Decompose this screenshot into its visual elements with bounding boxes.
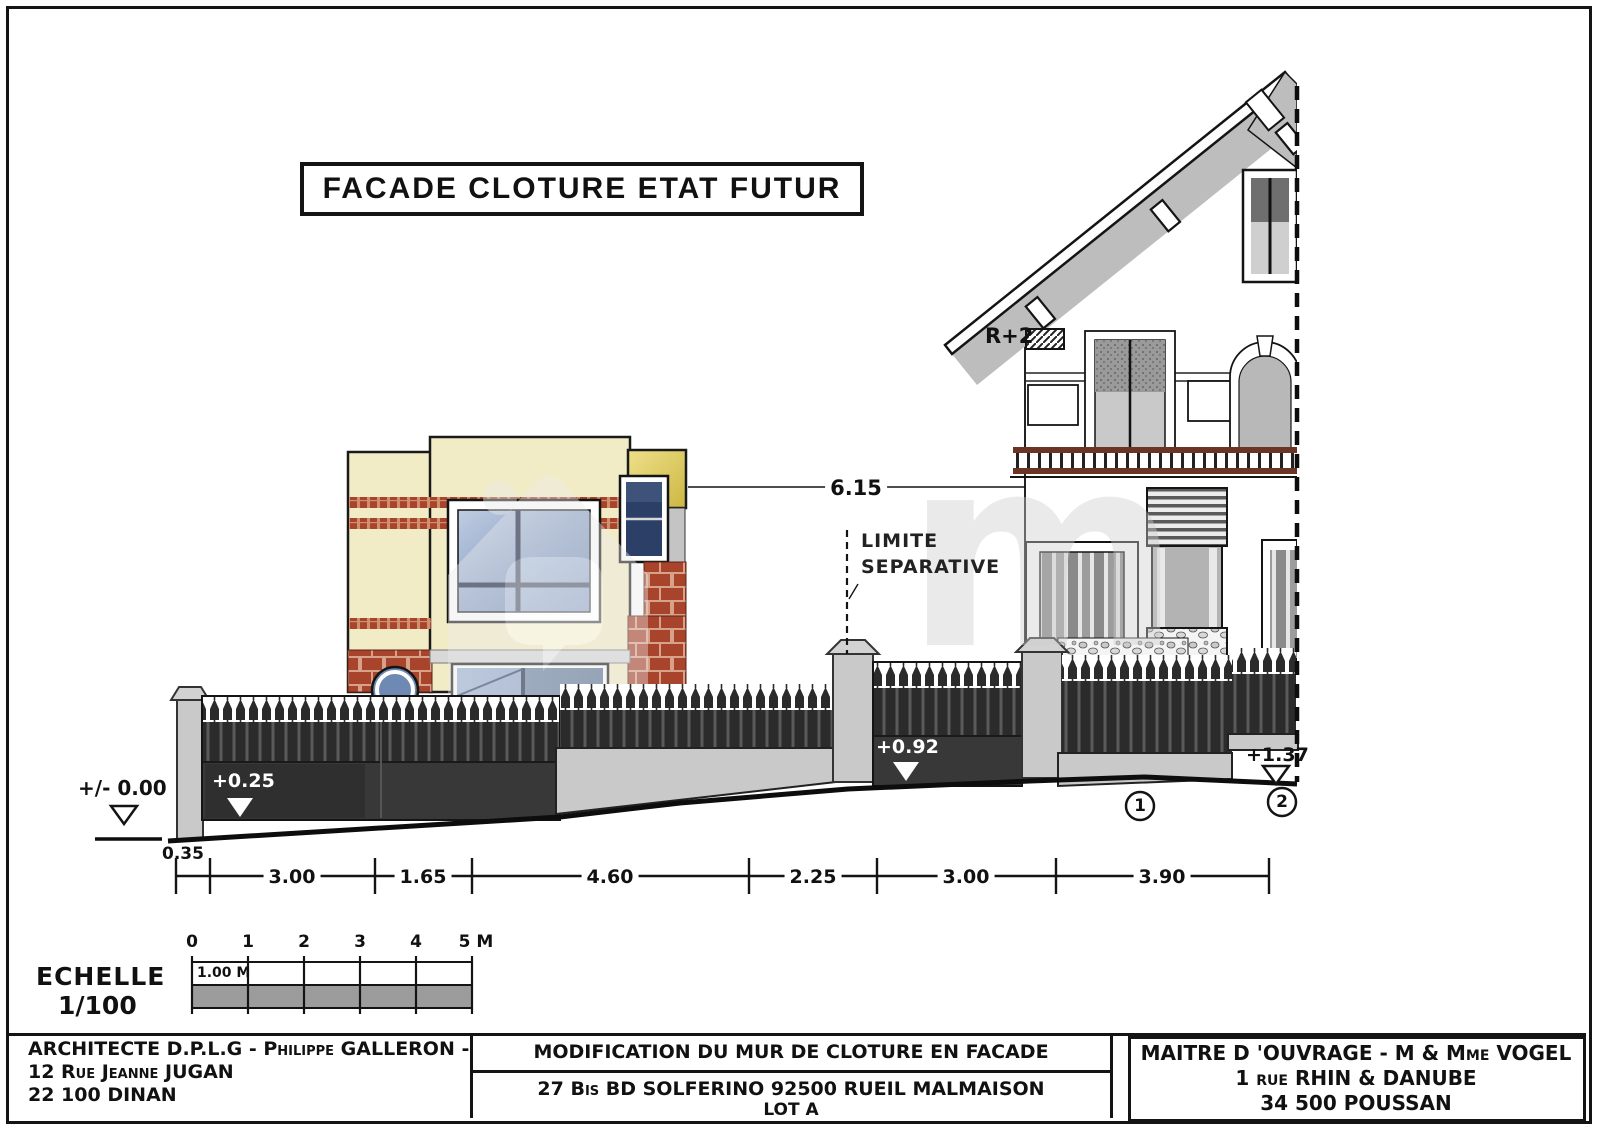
architect-line2: 12 Rue Jeanne JUGAN <box>28 1061 469 1084</box>
scale-tick-1: 1 <box>242 932 254 952</box>
project-title: MODIFICATION DU MUR DE CLOTURE EN FACADE <box>472 1041 1110 1063</box>
scale-tick-0: 0 <box>186 932 198 952</box>
storey-label: R+2 <box>985 324 1033 348</box>
marker-label-1: 1 <box>1126 796 1154 816</box>
dim-segment-1: 3.00 <box>264 866 321 888</box>
scale-title-line1: ECHELLE <box>36 962 165 991</box>
level-label-wall: +1.37 <box>1246 744 1309 766</box>
offset-dim-label: 0.35 <box>162 844 204 864</box>
marker-label-2: 2 <box>1268 792 1296 812</box>
boundary-label-line1: LIMITE <box>861 530 938 552</box>
project-address: 27 Bis BD SOLFERINO 92500 RUEIL MALMAISO… <box>472 1078 1110 1100</box>
architect-info: ARCHITECTE D.P.L.G - Philippe GALLERON -… <box>28 1038 469 1107</box>
scale-tick-5: 5 M <box>459 932 494 952</box>
dim-segment-4: 2.25 <box>785 866 842 888</box>
scale-title-line2: 1/100 <box>58 991 137 1020</box>
dim-segment-6: 3.90 <box>1134 866 1191 888</box>
titleblock-divider-2 <box>1110 1033 1113 1118</box>
scale-tick-3: 3 <box>354 932 366 952</box>
dim-segment-3: 4.60 <box>582 866 639 888</box>
drawing-title-box: FACADE CLOTURE ETAT FUTUR <box>300 162 864 216</box>
architect-line1: ARCHITECTE D.P.L.G - Philippe GALLERON - <box>28 1038 469 1061</box>
scale-tick-4: 4 <box>410 932 422 952</box>
elevation-drawing: m FACADE CLOTURE ETAT FUTUR R+2 LIMITE S… <box>0 0 1600 1130</box>
gap-dimension-label: 6.15 <box>825 476 887 500</box>
level-label-ground: +/- 0.00 <box>78 776 167 800</box>
scale-cell-label: 1.00 M <box>197 965 250 981</box>
dim-segment-5: 3.00 <box>938 866 995 888</box>
level-label-gate2: +0.92 <box>876 736 939 758</box>
project-lot: LOT A <box>472 1100 1110 1120</box>
scale-tick-2: 2 <box>298 932 310 952</box>
titleblock-mid-divider <box>473 1070 1110 1073</box>
architect-line3: 22 100 DINAN <box>28 1084 469 1107</box>
dim-segment-2: 1.65 <box>395 866 452 888</box>
owner-line3: 34 500 POUSSAN <box>1130 1091 1582 1115</box>
owner-line1: MAITRE D 'OUVRAGE - M & Mme VOGEL <box>1130 1041 1582 1065</box>
boundary-label-line2: SEPARATIVE <box>861 556 1000 578</box>
level-label-gate1: +0.25 <box>212 770 275 792</box>
drawing-title: FACADE CLOTURE ETAT FUTUR <box>323 172 842 206</box>
owner-line2: 1 rue RHIN & DANUBE <box>1130 1066 1582 1090</box>
